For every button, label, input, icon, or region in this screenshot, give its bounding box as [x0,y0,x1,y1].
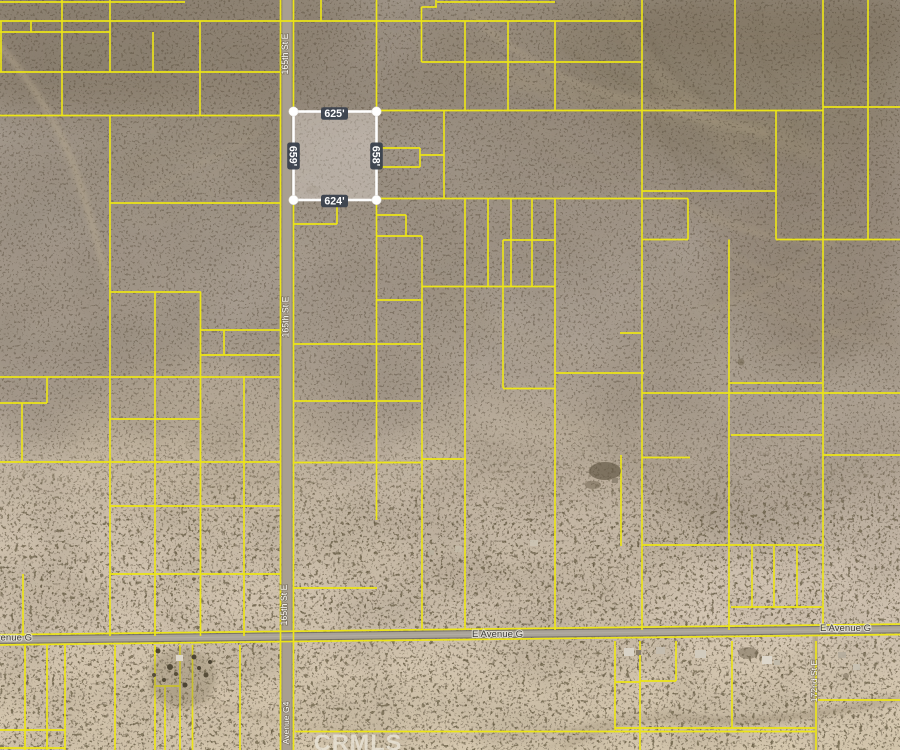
svg-text:624': 624' [324,196,344,208]
svg-text:659': 659' [287,146,299,166]
svg-text:CRMLS: CRMLS [314,730,403,750]
svg-text:658': 658' [370,146,382,166]
svg-text:165th St E: 165th St E [279,584,289,625]
svg-text:E Avenue G: E Avenue G [820,623,871,634]
svg-text:165th St E: 165th St E [280,33,290,74]
svg-text:E Avenue G: E Avenue G [472,629,523,640]
svg-text:625': 625' [324,108,344,120]
svg-text:172nd St E: 172nd St E [809,659,819,702]
svg-text:Avenue G4: Avenue G4 [281,701,291,744]
svg-text:E Avenue G: E Avenue G [0,633,32,644]
svg-text:165th St E: 165th St E [281,296,291,337]
